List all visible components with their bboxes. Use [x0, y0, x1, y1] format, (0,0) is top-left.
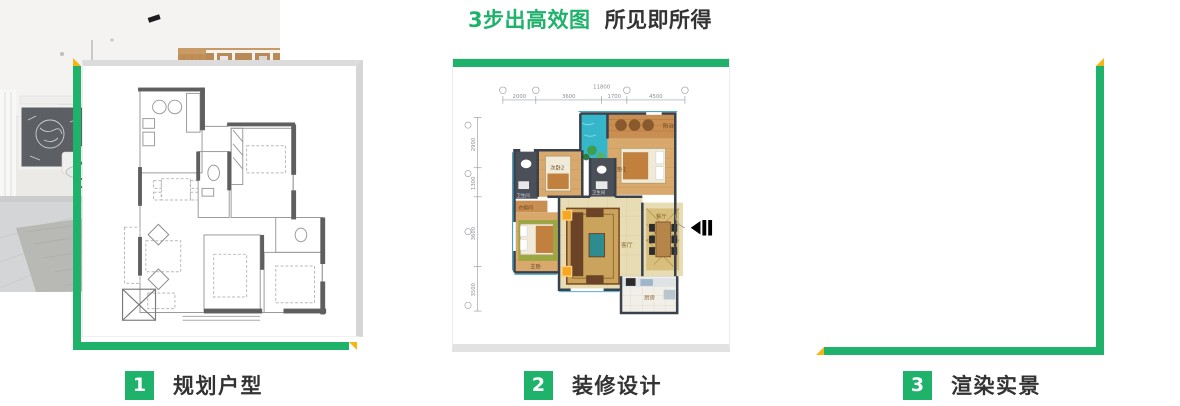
frame-bar-bottom — [824, 347, 1096, 355]
dim-total-label: 11800 — [593, 84, 611, 90]
page-title: 3步出高效图所见即所得 — [0, 4, 1180, 34]
step-item-3: 3 渲染实景 — [903, 370, 1041, 400]
room-label-bath1: 卫生间 — [516, 192, 530, 199]
step-item-2: 2 装修设计 — [524, 370, 662, 400]
frame-bar-left — [73, 66, 81, 350]
color-floorplan-card: 2000 3600 1700 4500 11800 2900 1300 3600… — [452, 58, 730, 352]
title-rest: 所见即所得 — [605, 8, 713, 32]
step-number-badge: 3 — [903, 371, 932, 400]
room-label-cloak: 衣帽间 — [518, 204, 533, 211]
dim-label: 4500 — [649, 94, 663, 100]
frame-bar-bottom — [73, 342, 349, 350]
room-label-balcony: 阳台 — [663, 122, 675, 130]
room-label-bath2: 卫生间 — [592, 189, 606, 196]
dim-label: 1700 — [607, 94, 621, 100]
card-accent-bar — [453, 59, 729, 67]
cad-floorplan-image — [89, 74, 350, 328]
step-number-badge: 1 — [125, 371, 154, 400]
promo-banner: 3步出高效图所见即所得 — [0, 0, 1180, 406]
dim-label: 3600 — [562, 94, 576, 100]
step-label: 渲染实景 — [951, 370, 1041, 400]
room-label-kitchen: 厨房 — [644, 293, 655, 301]
step-label: 装修设计 — [572, 370, 662, 400]
title-highlight: 3步出高效图 — [468, 8, 591, 32]
dim-label: 1300 — [471, 176, 477, 190]
step-label: 规划户型 — [173, 370, 263, 400]
step-item-1: 1 规划户型 — [125, 370, 263, 400]
room-label-living: 客厅 — [621, 241, 633, 249]
room-label-dining: 餐厅 — [656, 212, 667, 220]
cad-floorplan-card — [82, 60, 363, 337]
dim-label: 2000 — [513, 94, 527, 100]
corner-accent-icon — [816, 347, 824, 355]
dim-label: 3600 — [471, 226, 477, 240]
color-floorplan-image: 2000 3600 1700 4500 11800 2900 1300 3600… — [453, 67, 729, 344]
corner-accent-icon — [349, 342, 357, 350]
room-label-bedroom2: 次卧2 — [550, 164, 564, 172]
frame-bar-right — [1096, 66, 1104, 355]
room-label-master: 主卧 — [530, 262, 542, 270]
step-number-badge: 2 — [524, 371, 553, 400]
corner-accent-icon — [1096, 58, 1104, 66]
dim-label: 3500 — [471, 282, 477, 296]
dim-label: 2900 — [471, 137, 477, 151]
